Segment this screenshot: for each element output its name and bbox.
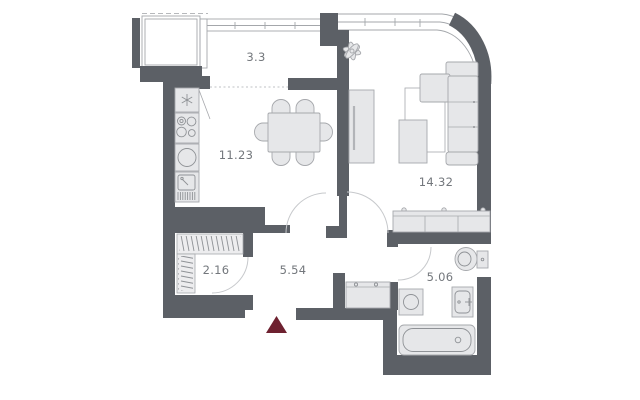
kitchen-door-arc (286, 193, 326, 233)
sofa-icon (420, 62, 478, 165)
bathtub-icon (399, 325, 475, 355)
hall-cabinet-icon (346, 282, 390, 308)
bathroom-sink-icon (452, 287, 473, 317)
entrance-arrow-icon (266, 316, 287, 333)
chair-icon (255, 123, 270, 141)
area-label-wardrobe: 2.16 (203, 263, 230, 277)
area-label-kitchen: 11.23 (219, 148, 253, 162)
floor-plan: 3.3 11.23 14.32 2.16 5.54 5.06 (0, 0, 640, 400)
balcony-hatch (142, 14, 208, 69)
living-room-furniture (342, 42, 490, 232)
living-door-arc (347, 192, 388, 233)
area-label-living: 14.32 (419, 175, 453, 189)
bathroom-fixtures (399, 248, 488, 356)
area-label-hallway: 5.54 (280, 263, 307, 277)
toilet-icon (455, 248, 488, 271)
area-label-bathroom: 5.06 (427, 270, 454, 284)
floor-plan-canvas: 3.3 11.23 14.32 2.16 5.54 5.06 (0, 0, 640, 400)
chair-icon (296, 151, 314, 166)
tv-cabinet-icon (349, 90, 374, 163)
coffee-table-icon (399, 120, 427, 163)
chair-icon (296, 100, 314, 115)
dining-set (255, 100, 333, 166)
kitchen-fixtures (175, 88, 210, 202)
area-label-balcony: 3.3 (246, 50, 265, 64)
sideboard-icon (393, 208, 490, 232)
washing-machine-icon (399, 289, 423, 315)
chair-icon (272, 100, 290, 115)
fridge-door-swing (199, 90, 210, 119)
dining-table-icon (268, 113, 320, 152)
chair-icon (272, 151, 290, 166)
